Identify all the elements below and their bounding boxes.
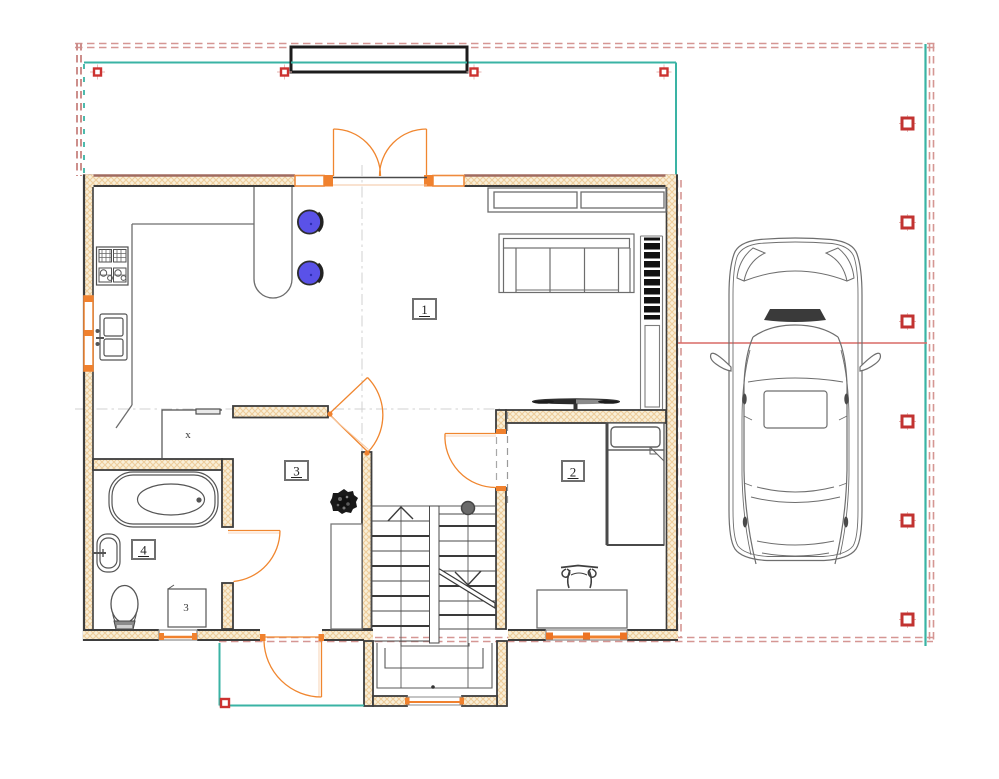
- svg-text:3: 3: [293, 464, 300, 479]
- svg-text:3: 3: [183, 602, 189, 614]
- svg-text:2: 2: [570, 465, 577, 480]
- svg-text:x: x: [185, 429, 191, 441]
- svg-text:4: 4: [140, 543, 147, 558]
- svg-text:1: 1: [421, 302, 428, 317]
